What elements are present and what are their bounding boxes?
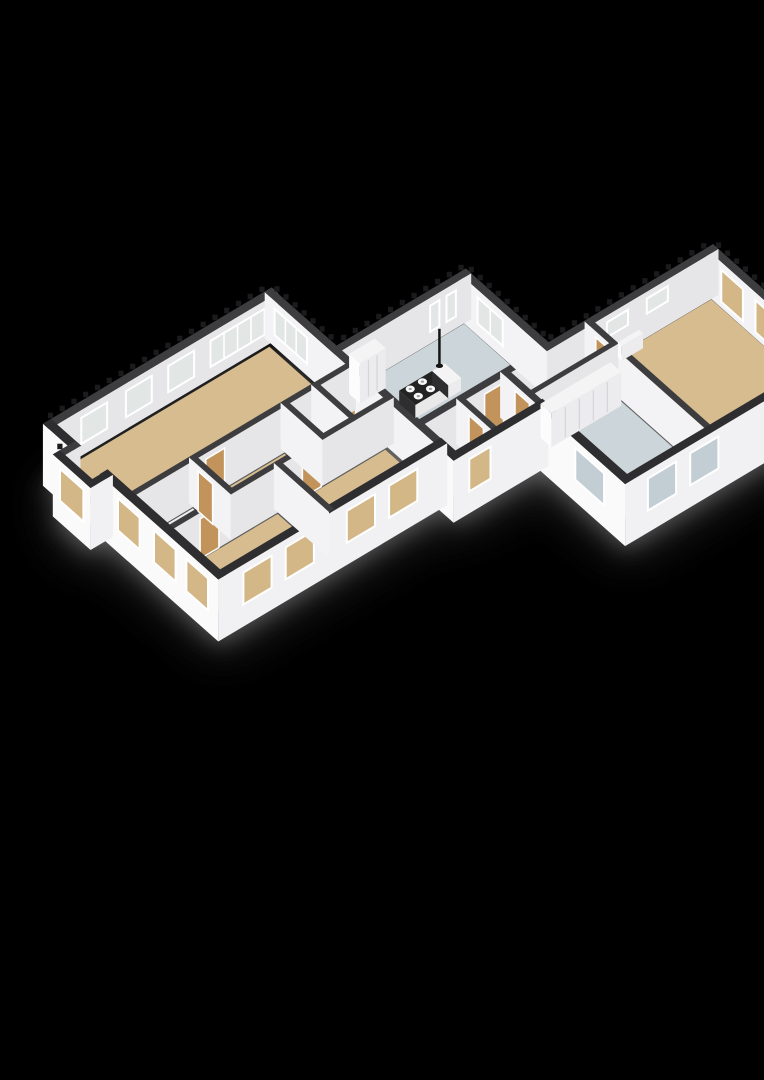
- roof-tooth: [478, 275, 483, 281]
- roof-tooth: [595, 306, 600, 312]
- roof-tooth: [212, 315, 217, 321]
- roof-tooth: [275, 286, 280, 292]
- roof-tooth: [701, 243, 706, 249]
- roof-tooth: [752, 274, 757, 280]
- roof-tooth: [107, 378, 112, 384]
- roof-tooth: [716, 242, 721, 248]
- roof-tooth: [532, 323, 537, 329]
- floorplan-canvas: [0, 0, 764, 1080]
- roof-tooth: [236, 301, 241, 307]
- roof-tooth: [376, 314, 381, 320]
- roof-tooth: [388, 307, 393, 313]
- roof-tooth: [743, 266, 748, 272]
- roof-tooth: [572, 320, 577, 326]
- roof-tooth: [654, 271, 659, 277]
- roof-tooth: [447, 272, 452, 278]
- roof-tooth: [248, 294, 253, 300]
- roof-tooth: [48, 413, 53, 419]
- roof-tooth: [60, 406, 65, 412]
- roof-tooth: [496, 291, 501, 297]
- roof-tooth: [514, 307, 519, 313]
- roof-tooth: [57, 444, 62, 450]
- roof-tooth: [689, 250, 694, 256]
- roof-tooth: [293, 302, 298, 308]
- roof-tooth: [83, 392, 88, 398]
- cooktop-burner-center: [417, 395, 420, 397]
- roof-tooth: [154, 350, 159, 356]
- roof-tooth: [118, 371, 123, 377]
- roof-tooth: [487, 283, 492, 289]
- roof-tooth: [505, 299, 510, 305]
- roof-tooth: [341, 335, 346, 341]
- floorplan-svg: [0, 0, 764, 1080]
- roof-tooth: [642, 278, 647, 284]
- pendant-head: [436, 364, 443, 368]
- roof-tooth: [311, 318, 316, 324]
- roof-tooth: [560, 327, 565, 333]
- window: [447, 290, 456, 322]
- roof-tooth: [725, 250, 730, 256]
- roof-tooth: [329, 334, 334, 340]
- roof-tooth: [678, 257, 683, 263]
- roof-tooth: [469, 267, 474, 273]
- roof-tooth: [353, 328, 358, 334]
- roof-tooth: [541, 331, 546, 337]
- roof-tooth: [400, 300, 405, 306]
- roof-tooth: [584, 313, 589, 319]
- roof-tooth: [619, 292, 624, 298]
- roof-tooth: [259, 287, 264, 293]
- roof-tooth: [95, 385, 100, 391]
- roof-tooth: [320, 326, 325, 332]
- roof-tooth: [435, 279, 440, 285]
- roof-tooth: [165, 343, 170, 349]
- window: [430, 300, 439, 332]
- roof-tooth: [631, 285, 636, 291]
- roof-tooth: [412, 293, 417, 299]
- roof-tooth: [284, 294, 289, 300]
- roof-tooth: [548, 334, 553, 340]
- roof-tooth: [177, 336, 182, 342]
- roof-tooth: [130, 364, 135, 370]
- roof-tooth: [365, 321, 370, 327]
- roof-tooth: [607, 299, 612, 305]
- roof-tooth: [71, 399, 76, 405]
- roof-tooth: [523, 315, 528, 321]
- cooktop-burner-center: [429, 388, 432, 390]
- roof-tooth: [142, 357, 147, 363]
- roof-tooth: [302, 310, 307, 316]
- roof-tooth: [734, 258, 739, 264]
- roof-tooth: [459, 265, 464, 271]
- cooktop-burner-center: [421, 381, 424, 383]
- roof-tooth: [666, 264, 671, 270]
- roof-tooth: [423, 286, 428, 292]
- cooktop-burner-center: [409, 388, 412, 390]
- roof-tooth: [224, 308, 229, 314]
- roof-tooth: [201, 322, 206, 328]
- roof-tooth: [189, 329, 194, 335]
